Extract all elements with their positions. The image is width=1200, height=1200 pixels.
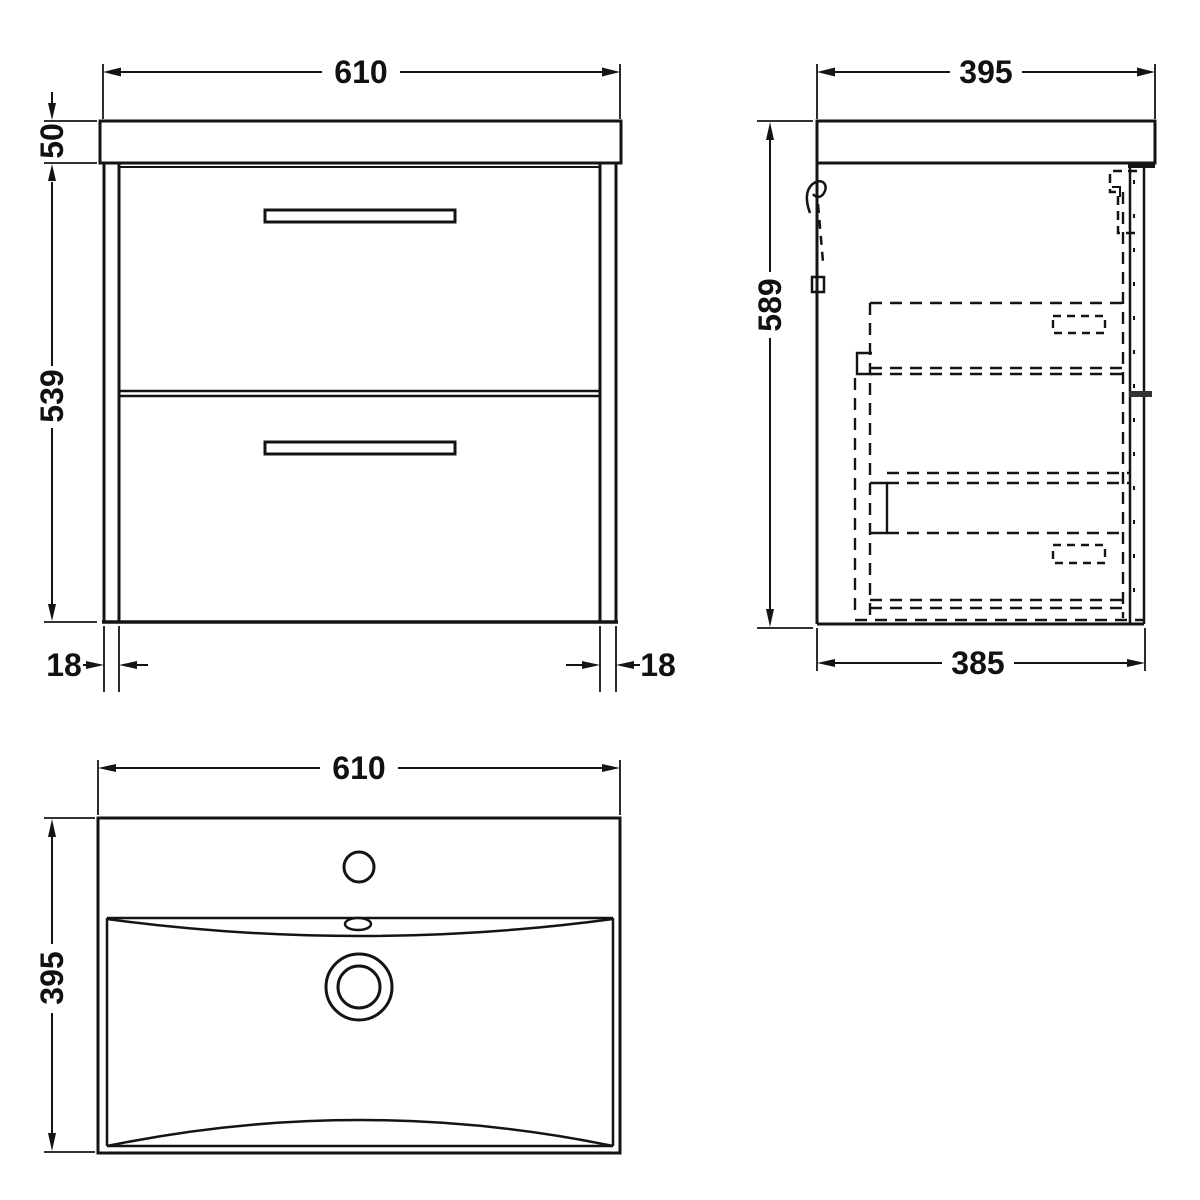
dim-arrow: [48, 164, 56, 181]
basin-bowl: [107, 852, 613, 1146]
tap-hole: [344, 852, 374, 882]
dim-arrow: [119, 661, 137, 669]
hidden-drawer-boxes: [855, 192, 1143, 620]
overflow-hole: [345, 918, 371, 930]
dim-arrow: [103, 68, 121, 77]
dim-arrow: [1137, 68, 1155, 77]
plan-depth-dimension: 395: [34, 818, 95, 1152]
left-frame-label: 18: [46, 647, 82, 683]
dim-arrow: [48, 819, 56, 837]
hanging-rail-connector: [1129, 391, 1152, 397]
basin-plan-view: 610 395: [34, 750, 620, 1153]
dim-arrow: [98, 764, 116, 772]
bracket-stem-hidden: [818, 204, 823, 262]
dim-arrow: [48, 604, 56, 621]
side-elevation-view: 395: [752, 54, 1155, 681]
dim-arrow: [817, 659, 835, 667]
dim-arrow: [602, 68, 620, 77]
side-height-label: 589: [752, 278, 788, 331]
dim-arrow: [602, 764, 620, 772]
dim-arrow: [48, 103, 56, 120]
plan-width-dimension: 610: [98, 750, 620, 815]
plan-depth-label: 395: [34, 951, 70, 1004]
cabinet-height-dimension: 539: [34, 182, 97, 622]
bowl-front-wall-curve: [107, 1120, 613, 1146]
top-drawer-handle: [265, 210, 455, 222]
dim-arrow: [766, 609, 774, 627]
right-frame-label: 18: [640, 647, 676, 683]
left-frame-dimension: 18: [46, 626, 148, 692]
drawing-sheet: 610 50 539: [0, 0, 1200, 1200]
front-elevation-view: 610 50 539: [34, 54, 676, 692]
waste-outer-ring: [326, 954, 392, 1020]
side-bottom-depth-label: 385: [951, 645, 1004, 681]
side-height-dimension: 589: [752, 121, 813, 628]
dim-arrow: [817, 68, 835, 77]
basin-outer-rim: [98, 818, 620, 1153]
side-depth-dimension: 395: [817, 54, 1155, 119]
vanity-technical-drawing: 610 50 539: [0, 0, 1200, 1200]
countertop-front: [100, 121, 621, 163]
side-depth-label: 395: [959, 54, 1012, 90]
right-frame-dimension: 18: [566, 626, 676, 692]
bottom-drawer-runner-step: [870, 483, 887, 533]
countertop-height-dimension: 50: [34, 92, 97, 181]
bottom-drawer-bracket-hidden: [1053, 545, 1105, 563]
countertop-side: [817, 121, 1155, 163]
dim-arrow: [766, 122, 774, 140]
waste-inner-ring: [338, 966, 380, 1008]
dim-arrow: [582, 661, 600, 669]
dim-arrow: [86, 661, 104, 669]
top-drawer-bracket-hidden: [1053, 316, 1105, 333]
countertop-height-label: 50: [34, 123, 70, 159]
dim-arrow: [1127, 659, 1145, 667]
front-width-dimension: 610: [103, 54, 620, 119]
bottom-drawer-handle: [265, 442, 455, 454]
plan-width-label: 610: [332, 750, 385, 786]
cabinet-height-label: 539: [34, 369, 70, 422]
front-width-label: 610: [334, 54, 387, 90]
dim-arrow: [48, 1133, 56, 1151]
side-bottom-depth-dimension: 385: [817, 628, 1145, 681]
dim-arrow: [616, 661, 634, 669]
